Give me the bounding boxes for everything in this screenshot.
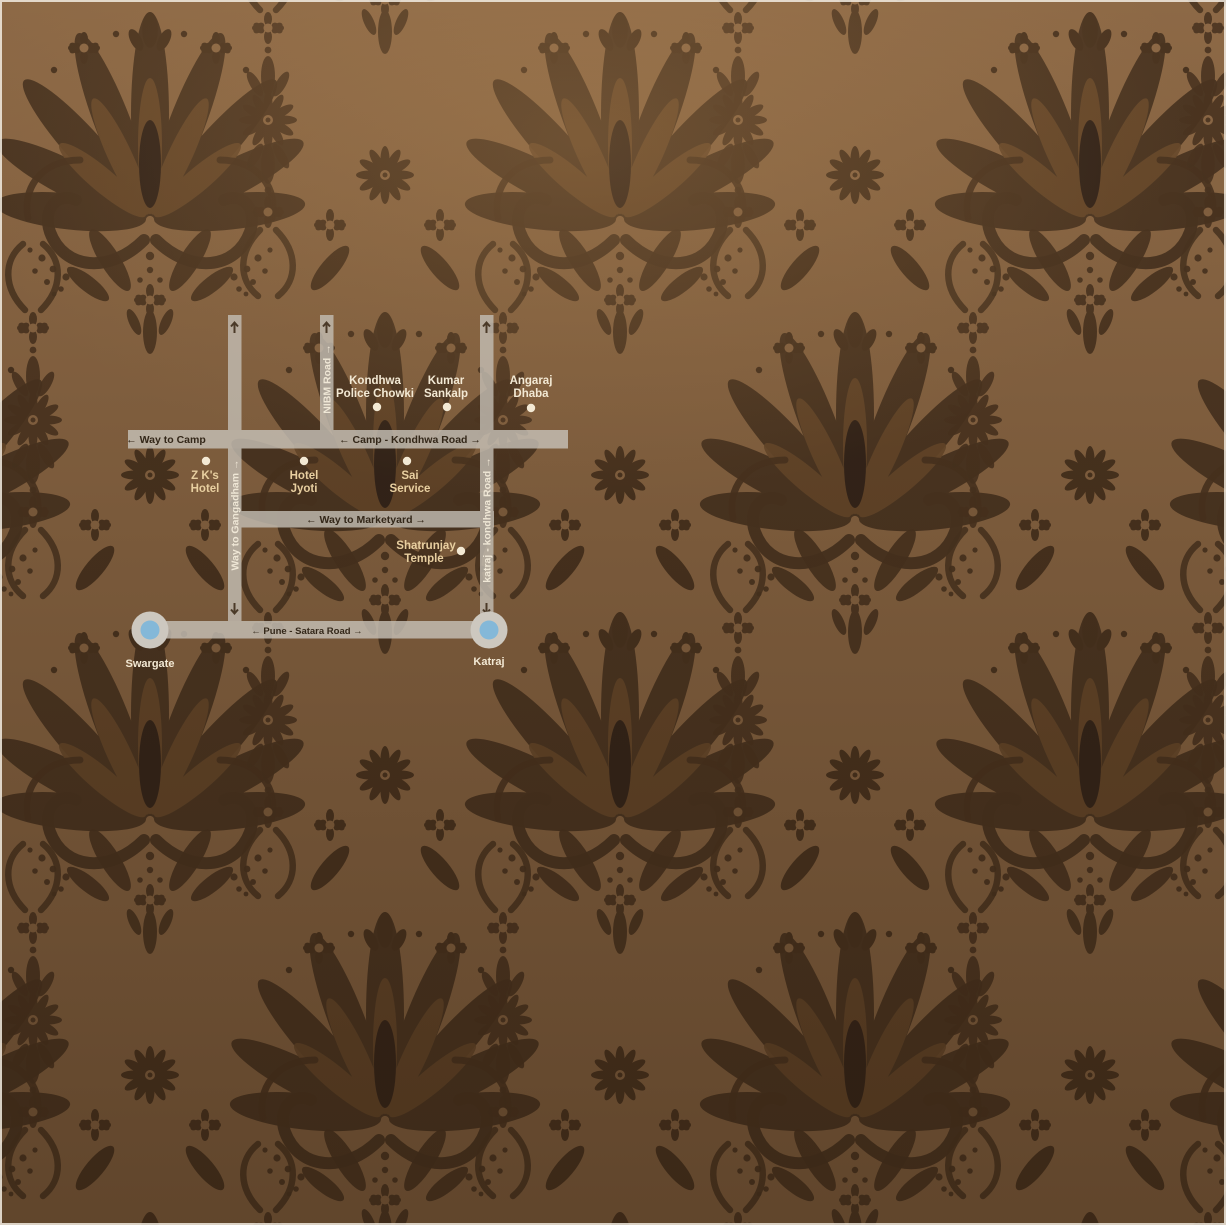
svg-text:Dhaba: Dhaba — [513, 388, 549, 400]
svg-text:Shatrunjay: Shatrunjay — [396, 540, 456, 552]
svg-text:NIBM Road →: NIBM Road → — [322, 344, 334, 413]
svg-text:Kondhwa: Kondhwa — [349, 375, 401, 387]
svg-text:Police Chowki: Police Chowki — [336, 388, 414, 400]
svg-text:Hotel: Hotel — [191, 483, 220, 495]
svg-text:← Way to Marketyard →: ← Way to Marketyard → — [306, 514, 426, 526]
svg-text:← Pune - Satara Road →: ← Pune - Satara Road → — [251, 626, 362, 637]
svg-text:Temple: Temple — [404, 553, 443, 565]
svg-text:← Camp - Kondhwa Road →: ← Camp - Kondhwa Road → — [339, 434, 481, 446]
svg-text:Sai: Sai — [401, 470, 418, 482]
svg-text:Kumar: Kumar — [428, 375, 465, 387]
svg-text:Way to Gangadham →: Way to Gangadham → — [230, 459, 242, 570]
svg-text:Angaraj: Angaraj — [510, 375, 553, 387]
svg-text:Jyoti: Jyoti — [291, 483, 318, 495]
svg-text:Service: Service — [390, 483, 431, 495]
svg-text:Katraj: Katraj — [473, 656, 504, 668]
svg-text:Hotel: Hotel — [290, 470, 319, 482]
svg-text:← Way to Camp: ← Way to Camp — [126, 434, 206, 446]
svg-text:katraj - kondhwa Road →: katraj - kondhwa Road → — [482, 457, 494, 582]
svg-text:Z K's: Z K's — [191, 470, 219, 482]
svg-text:Swargate: Swargate — [126, 658, 175, 670]
svg-text:Sankalp: Sankalp — [424, 388, 468, 400]
